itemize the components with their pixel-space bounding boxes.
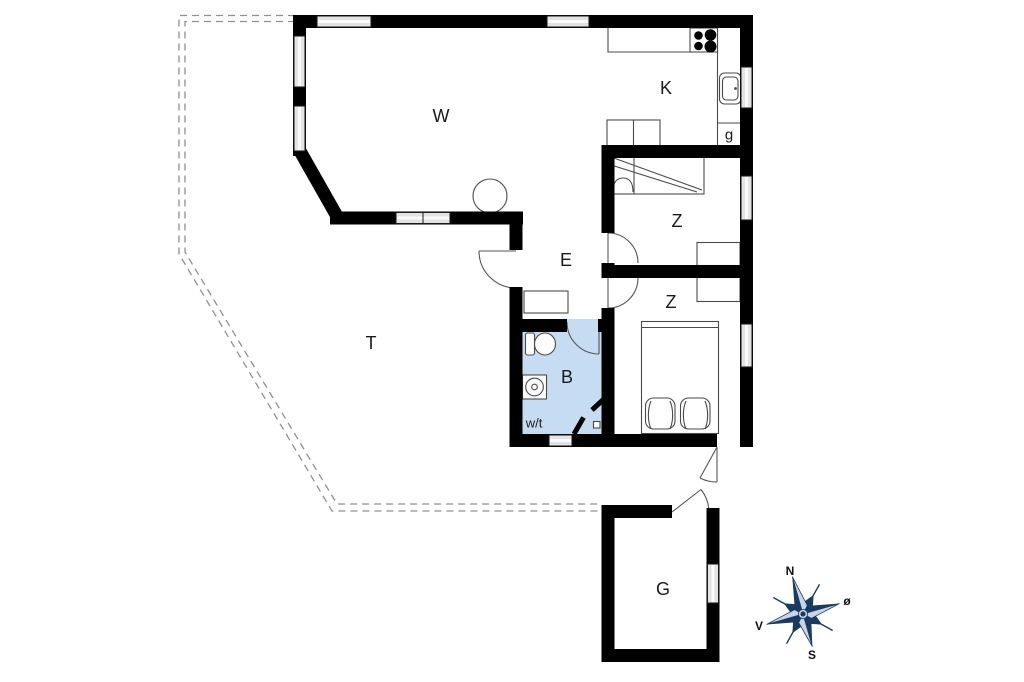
window [708, 564, 719, 603]
double-bed [642, 322, 719, 434]
wardrobe-bedroom1 [697, 243, 740, 266]
bedroom2-door [608, 278, 638, 308]
window [396, 213, 450, 224]
back-door [700, 447, 717, 482]
wardrobe-bedroom2 [697, 278, 740, 302]
compass-rose [756, 566, 849, 657]
room-label-kitchen: K [660, 79, 672, 97]
annex-door [672, 490, 709, 513]
room-label-kitchen-closet: g [725, 128, 733, 143]
room-label-terrace: T [366, 334, 377, 352]
window [741, 176, 752, 220]
stove [690, 28, 718, 53]
window [317, 16, 371, 27]
entrance-door [479, 251, 516, 288]
room-label-bedroom2: Z [666, 293, 677, 311]
window [294, 106, 305, 151]
room-label-living: W [433, 107, 450, 125]
floor-plan-drawing [0, 0, 1024, 682]
compass-label-west: V [755, 620, 763, 632]
compass-label-north: N [786, 565, 795, 577]
room-label-bathroom: B [561, 368, 573, 386]
compass-label-south: S [808, 649, 816, 661]
washer-dryer-label: w/t [526, 417, 543, 430]
bunk-bed [609, 155, 704, 194]
bedroom1-door [608, 233, 638, 263]
window [741, 324, 752, 367]
window [549, 435, 572, 446]
floor-plan: W K g Z Z E B w/t T G N ø V S [0, 0, 1024, 682]
windows [294, 16, 752, 603]
room-label-bedroom1: Z [672, 212, 683, 230]
room-label-annex: G [656, 580, 670, 598]
wall-diagonal [300, 151, 338, 218]
room-label-hall: E [560, 251, 572, 269]
kitchen-sink [720, 73, 742, 104]
kitchen-cabinet [607, 120, 660, 148]
window [294, 36, 305, 87]
toilet [526, 333, 556, 355]
compass-label-east: ø [843, 595, 850, 607]
window [741, 67, 752, 108]
window [547, 16, 589, 27]
hall-cabinet [524, 291, 568, 313]
round-table [473, 179, 507, 213]
washing-machine [523, 375, 547, 399]
